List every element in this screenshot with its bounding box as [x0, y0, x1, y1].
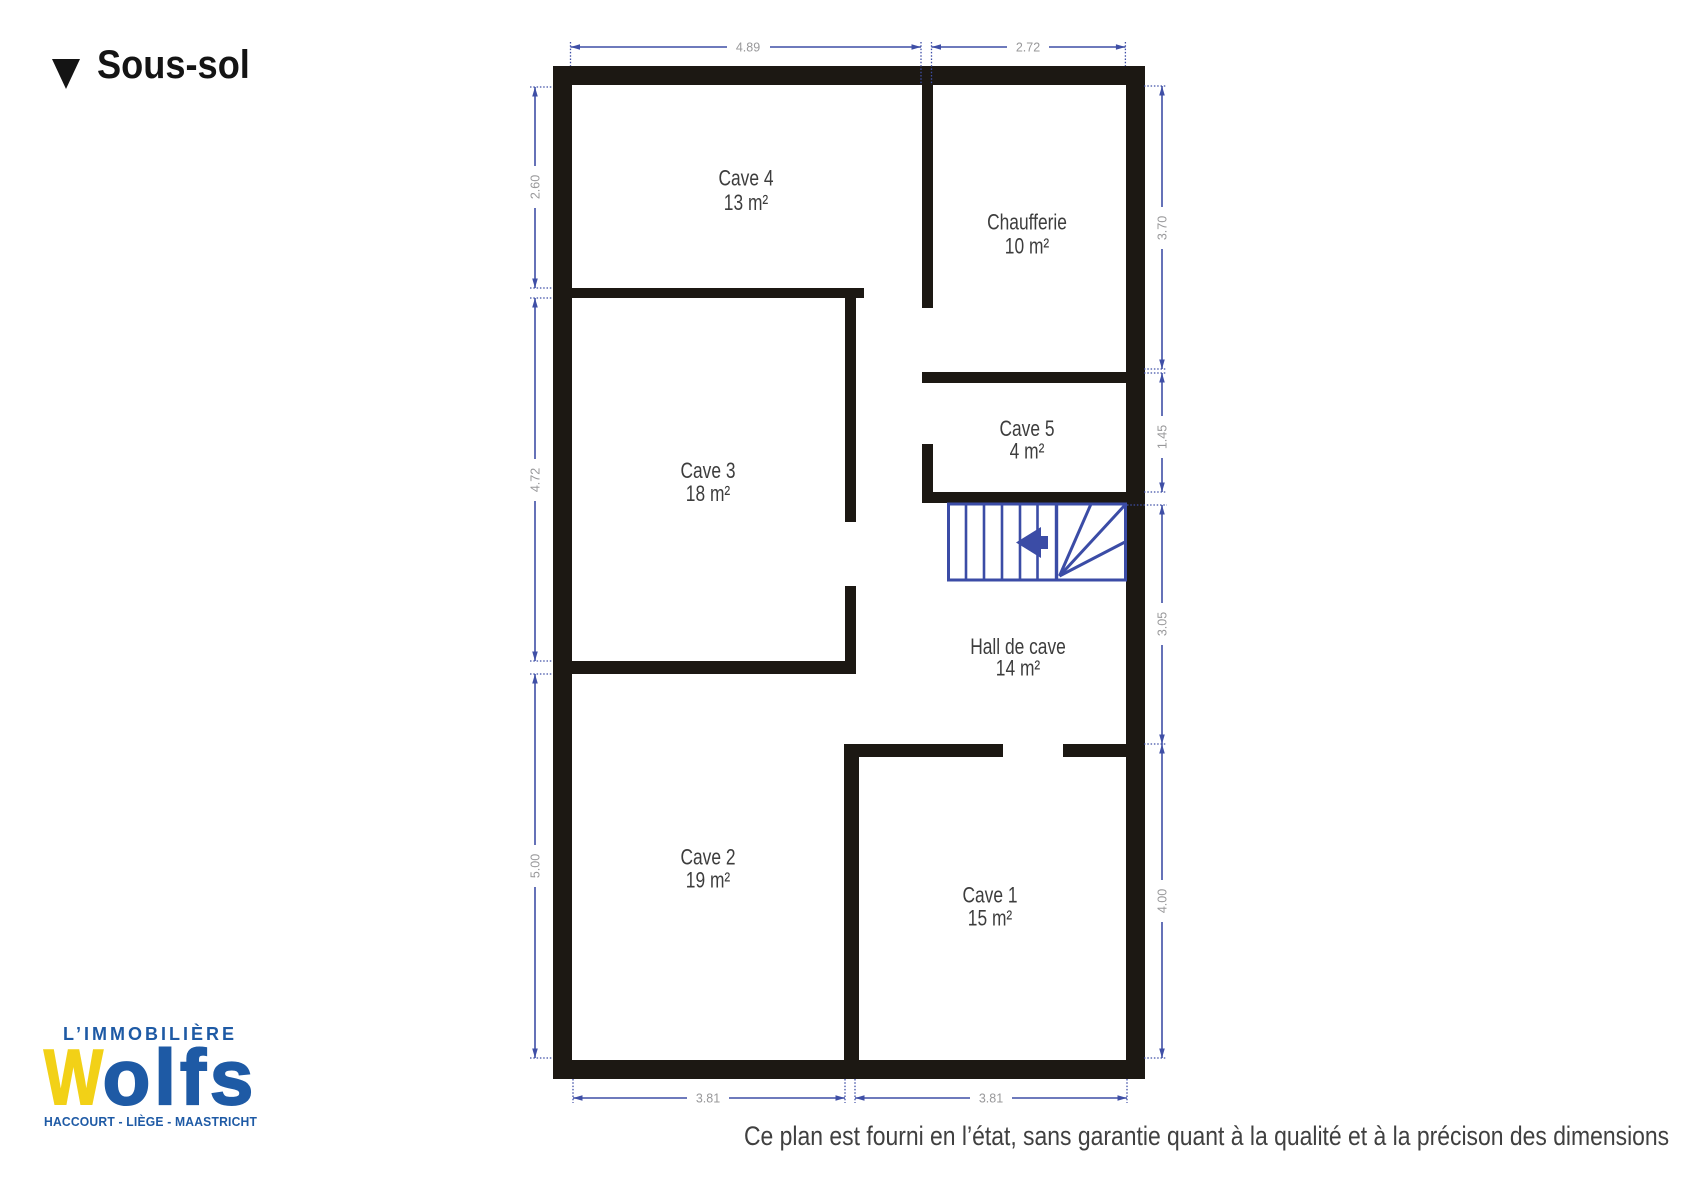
svg-text:Cave 2: Cave 2: [680, 846, 735, 870]
svg-text:Cave 1: Cave 1: [962, 884, 1017, 908]
svg-text:3.81: 3.81: [979, 1092, 1003, 1106]
svg-text:Cave 5: Cave 5: [999, 417, 1054, 441]
svg-text:Cave 3: Cave 3: [680, 459, 735, 483]
svg-text:3.05: 3.05: [1156, 612, 1170, 636]
svg-text:4 m²: 4 m²: [1010, 440, 1045, 464]
svg-text:19 m²: 19 m²: [686, 869, 731, 893]
svg-text:2.72: 2.72: [1016, 41, 1040, 55]
svg-text:10 m²: 10 m²: [1005, 235, 1050, 259]
svg-text:4.89: 4.89: [736, 41, 760, 55]
svg-text:Chaufferie: Chaufferie: [987, 211, 1067, 235]
svg-text:1.45: 1.45: [1156, 425, 1170, 449]
svg-text:5.00: 5.00: [529, 854, 543, 878]
svg-text:Cave 4: Cave 4: [718, 167, 773, 191]
svg-text:4.72: 4.72: [529, 468, 543, 492]
svg-text:13 m²: 13 m²: [724, 191, 769, 215]
svg-text:3.70: 3.70: [1156, 216, 1170, 240]
svg-text:4.00: 4.00: [1156, 889, 1170, 913]
svg-text:3.81: 3.81: [696, 1092, 720, 1106]
svg-text:2.60: 2.60: [529, 175, 543, 199]
svg-text:14 m²: 14 m²: [996, 657, 1041, 681]
svg-text:18 m²: 18 m²: [686, 482, 731, 506]
svg-text:15 m²: 15 m²: [968, 907, 1013, 931]
